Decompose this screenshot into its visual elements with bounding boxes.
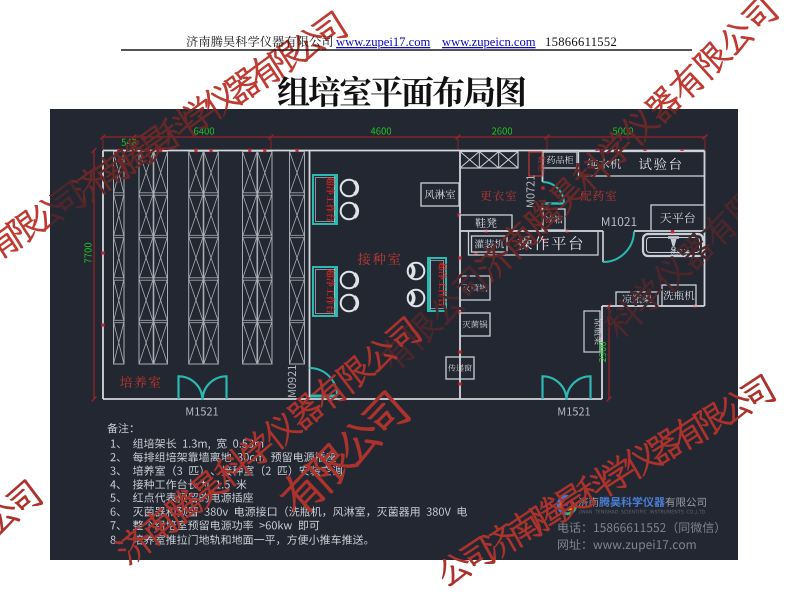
svg-text:www.zupei17.com: www.zupei17.com (336, 35, 431, 49)
svg-text:www.zupeicn.com: www.zupeicn.com (442, 35, 536, 49)
svg-text:15866611552: 15866611552 (545, 35, 617, 49)
